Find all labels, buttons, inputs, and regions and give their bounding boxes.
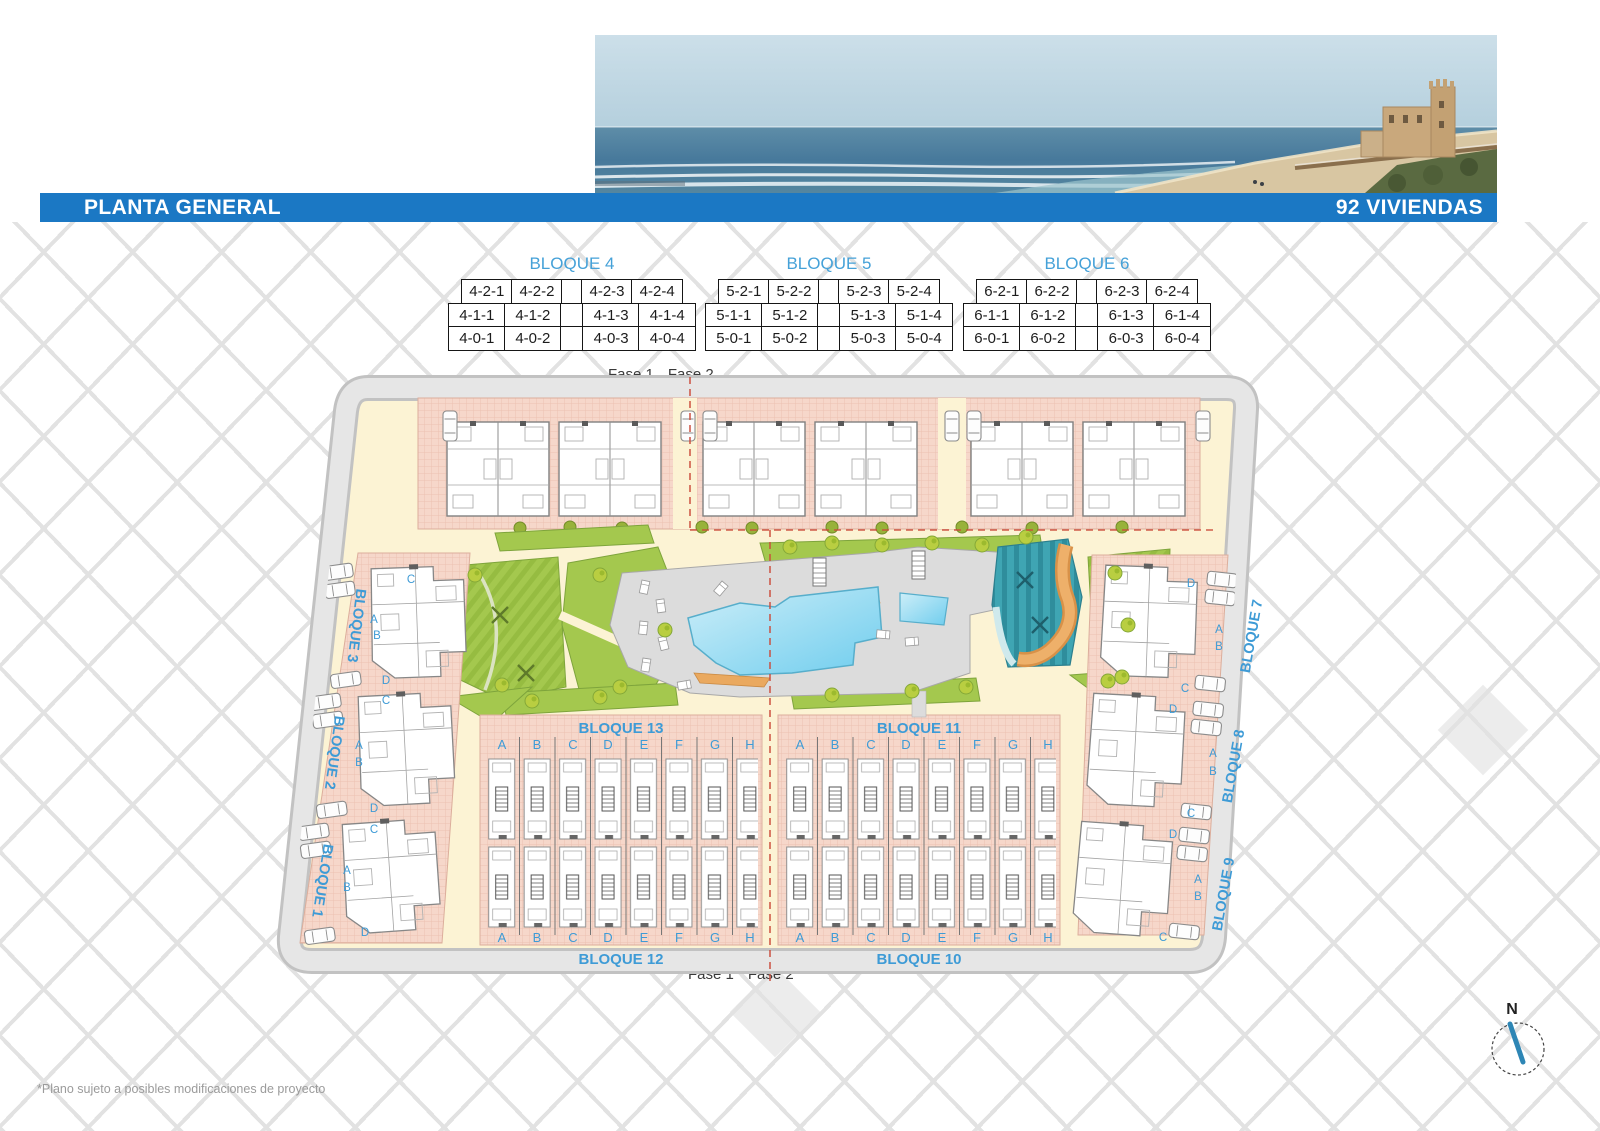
- unit-cell: 6-2-4: [1146, 279, 1198, 304]
- svg-text:D: D: [901, 737, 910, 752]
- unit-cell: 5-1-1: [705, 303, 763, 328]
- svg-text:D: D: [603, 737, 612, 752]
- svg-text:D: D: [1169, 829, 1177, 841]
- unit-cell: 4-0-2: [504, 326, 562, 351]
- svg-text:B: B: [533, 930, 542, 945]
- spacer-cell: [817, 326, 841, 351]
- svg-text:A: A: [343, 865, 351, 877]
- site-plan: BLOQUE 13 BLOQUE 11 BLOQUE 12 BLOQUE 10 …: [270, 375, 1270, 1000]
- block-title: BLOQUE 10: [876, 951, 961, 968]
- svg-text:A: A: [796, 930, 805, 945]
- unit-cell: 6-0-3: [1097, 326, 1155, 351]
- svg-text:E: E: [640, 930, 649, 945]
- block-title: BLOQUE 13: [578, 720, 663, 737]
- unit-cell: 4-1-1: [448, 303, 506, 328]
- spacer-cell: [818, 279, 839, 304]
- unit-cell: 4-0-4: [638, 326, 696, 351]
- svg-text:B: B: [533, 737, 542, 752]
- units-count-badge: 92 VIVIENDAS: [1336, 196, 1497, 220]
- pool-stairs: [813, 558, 826, 586]
- unit-cell: 5-0-2: [761, 326, 819, 351]
- building-bloque5-a: [703, 421, 805, 516]
- svg-text:E: E: [938, 737, 947, 752]
- svg-text:D: D: [603, 930, 612, 945]
- spacer-cell: [560, 303, 584, 328]
- building-bloque4-a: [447, 421, 549, 516]
- table-title: BLOQUE 5: [705, 254, 953, 274]
- unit-cell: 6-2-1: [976, 279, 1028, 304]
- unit-cell: 6-0-1: [963, 326, 1021, 351]
- svg-text:D: D: [370, 803, 378, 815]
- svg-text:A: A: [355, 740, 363, 752]
- unit-cell: 6-2-2: [1026, 279, 1078, 304]
- table-row: 5-0-1 5-0-2 5-0-3 5-0-4: [705, 326, 953, 351]
- svg-text:F: F: [675, 930, 683, 945]
- svg-text:C: C: [407, 574, 415, 586]
- building-bloque4-b: [559, 421, 661, 516]
- svg-text:G: G: [1008, 737, 1018, 752]
- svg-text:D: D: [361, 927, 369, 939]
- unit-cell: 6-0-4: [1153, 326, 1211, 351]
- svg-text:A: A: [498, 930, 507, 945]
- svg-text:A: A: [1194, 874, 1202, 886]
- svg-text:D: D: [1187, 578, 1195, 590]
- svg-text:B: B: [1209, 766, 1217, 778]
- unit-cell: 6-1-4: [1153, 303, 1211, 328]
- unit-cell: 4-1-3: [582, 303, 640, 328]
- svg-text:B: B: [373, 630, 381, 642]
- unit-cell: 5-0-4: [895, 326, 953, 351]
- block-title: BLOQUE 12: [578, 951, 663, 968]
- title-bar: PLANTA GENERAL 92 VIVIENDAS: [40, 193, 1497, 222]
- building-bloque5-b: [815, 421, 917, 516]
- table-row: 5-2-1 5-2-2 5-2-3 5-2-4: [718, 279, 940, 304]
- legend-table-bloque-6: BLOQUE 6 6-2-1 6-2-2 6-2-3 6-2-4 6-1-1 6…: [963, 254, 1211, 351]
- table-row: 5-1-1 5-1-2 5-1-3 5-1-4: [705, 303, 953, 328]
- svg-text:D: D: [382, 675, 390, 687]
- unit-cell: 5-0-1: [705, 326, 763, 351]
- svg-text:A: A: [498, 737, 507, 752]
- svg-text:G: G: [710, 930, 720, 945]
- unit-cell: 6-2-3: [1096, 279, 1148, 304]
- water-feature: [992, 539, 1082, 667]
- svg-text:A: A: [796, 737, 805, 752]
- unit-cell: 5-1-3: [839, 303, 897, 328]
- unit-cell: 5-1-2: [761, 303, 819, 328]
- spacer-cell: [1075, 326, 1099, 351]
- spacer-cell: [1075, 303, 1099, 328]
- svg-text:C: C: [568, 737, 577, 752]
- svg-text:C: C: [866, 737, 875, 752]
- svg-text:C: C: [382, 695, 390, 707]
- svg-text:B: B: [831, 930, 840, 945]
- svg-text:E: E: [938, 930, 947, 945]
- svg-text:A: A: [1209, 748, 1217, 760]
- table-row: 4-1-1 4-1-2 4-1-3 4-1-4: [448, 303, 696, 328]
- block-title: BLOQUE 11: [877, 720, 961, 737]
- kids-pool: [900, 593, 948, 625]
- svg-text:B: B: [355, 757, 363, 769]
- svg-text:C: C: [866, 930, 875, 945]
- svg-text:F: F: [675, 737, 683, 752]
- table-title: BLOQUE 6: [963, 254, 1211, 274]
- svg-text:D: D: [901, 930, 910, 945]
- top-buildings-strip: [418, 398, 1210, 529]
- pool-stairs: [912, 551, 925, 579]
- table-row: 4-0-1 4-0-2 4-0-3 4-0-4: [448, 326, 696, 351]
- legend-table-bloque-4: BLOQUE 4 4-2-1 4-2-2 4-2-3 4-2-4 4-1-1 4…: [448, 254, 696, 351]
- photo-sky: [595, 35, 1497, 130]
- unit-cell: 5-2-3: [838, 279, 890, 304]
- unit-cell: 6-0-2: [1019, 326, 1077, 351]
- svg-text:H: H: [1043, 930, 1052, 945]
- north-compass: N: [1474, 992, 1564, 1087]
- svg-text:H: H: [1043, 737, 1052, 752]
- unit-cell: 4-2-2: [511, 279, 563, 304]
- disclaimer-footnote: *Plano sujeto a posibles modificaciones …: [37, 1082, 325, 1096]
- svg-text:G: G: [1008, 930, 1018, 945]
- unit-cell: 5-2-4: [888, 279, 940, 304]
- spacer-cell: [1076, 279, 1097, 304]
- building-bloque6-b: [1083, 421, 1185, 516]
- svg-text:C: C: [568, 930, 577, 945]
- legend-table-bloque-5: BLOQUE 5 5-2-1 5-2-2 5-2-3 5-2-4 5-1-1 5…: [705, 254, 953, 351]
- unit-cell: 4-2-1: [461, 279, 513, 304]
- unit-cell: 4-1-4: [638, 303, 696, 328]
- svg-text:C: C: [1187, 808, 1195, 820]
- table-title: BLOQUE 4: [448, 254, 696, 274]
- unit-cell: 4-0-1: [448, 326, 506, 351]
- unit-cell: 4-2-4: [631, 279, 683, 304]
- svg-text:B: B: [1194, 891, 1202, 903]
- svg-text:B: B: [343, 882, 351, 894]
- svg-text:D: D: [1169, 704, 1177, 716]
- svg-text:C: C: [1181, 683, 1189, 695]
- pool-complex: [610, 547, 1012, 697]
- svg-text:B: B: [1215, 641, 1223, 653]
- table-row: 6-2-1 6-2-2 6-2-3 6-2-4: [976, 279, 1198, 304]
- spacer-cell: [560, 326, 584, 351]
- unit-cell: 5-2-2: [768, 279, 820, 304]
- table-row: 4-2-1 4-2-2 4-2-3 4-2-4: [461, 279, 683, 304]
- unit-cell: 6-1-3: [1097, 303, 1155, 328]
- svg-text:F: F: [973, 737, 981, 752]
- svg-text:H: H: [745, 930, 754, 945]
- table-row: 6-1-1 6-1-2 6-1-3 6-1-4: [963, 303, 1211, 328]
- building-bloque6-a: [971, 421, 1073, 516]
- table-row: 6-0-1 6-0-2 6-0-3 6-0-4: [963, 326, 1211, 351]
- unit-cell: 4-2-3: [581, 279, 633, 304]
- svg-text:A: A: [370, 614, 378, 626]
- spacer-cell: [561, 279, 582, 304]
- unit-cell: 4-0-3: [582, 326, 640, 351]
- unit-cell: 5-2-1: [718, 279, 770, 304]
- svg-text:A: A: [1215, 624, 1223, 636]
- svg-text:G: G: [710, 737, 720, 752]
- spacer-cell: [817, 303, 841, 328]
- svg-text:F: F: [973, 930, 981, 945]
- unit-cell: 5-1-4: [895, 303, 953, 328]
- svg-text:H: H: [745, 737, 754, 752]
- unit-cell: 4-1-2: [504, 303, 562, 328]
- compass-needle-icon: [1510, 1024, 1523, 1062]
- page-title: PLANTA GENERAL: [40, 196, 281, 220]
- unit-cell: 6-1-2: [1019, 303, 1077, 328]
- north-label: N: [1506, 1001, 1518, 1018]
- svg-text:C: C: [1159, 932, 1167, 944]
- svg-text:B: B: [831, 737, 840, 752]
- unit-cell: 5-0-3: [839, 326, 897, 351]
- svg-text:C: C: [370, 824, 378, 836]
- svg-text:E: E: [640, 737, 649, 752]
- unit-cell: 6-1-1: [963, 303, 1021, 328]
- beach-photo: [595, 35, 1497, 193]
- plan-sheet: PLANTA GENERAL 92 VIVIENDAS BLOQUE 4 4-2…: [0, 0, 1600, 1131]
